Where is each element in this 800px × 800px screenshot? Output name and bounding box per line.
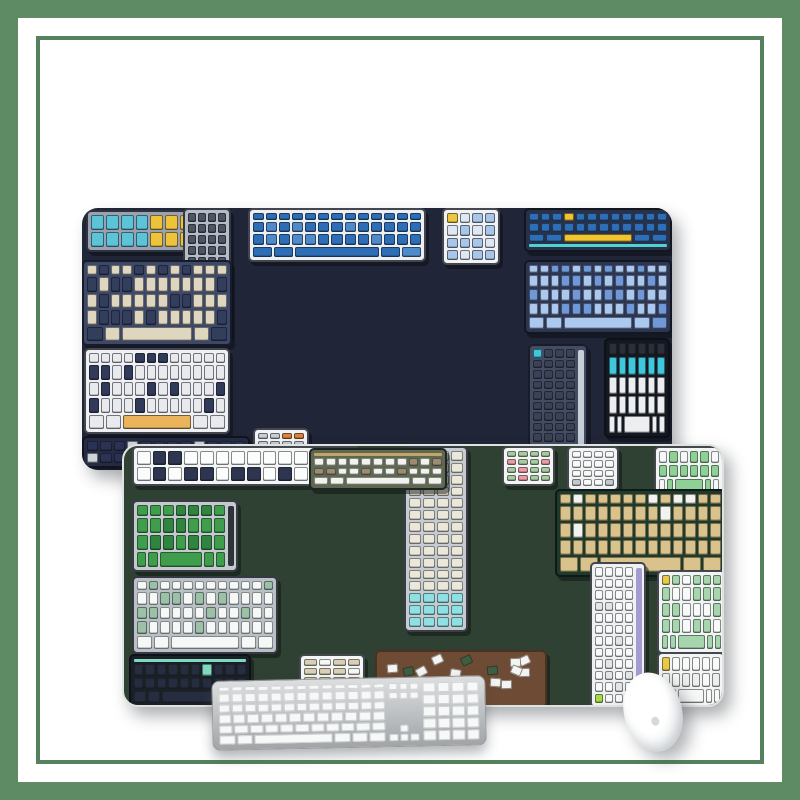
key <box>533 433 542 442</box>
key <box>264 592 274 605</box>
key <box>583 479 592 486</box>
key <box>172 607 182 620</box>
nav-key <box>388 683 397 690</box>
key <box>134 664 143 676</box>
key <box>605 451 614 458</box>
key <box>172 592 182 605</box>
key <box>208 213 216 222</box>
key <box>229 592 239 605</box>
key <box>241 592 251 605</box>
key <box>712 673 720 687</box>
key <box>264 581 274 590</box>
kb-white-orange <box>84 348 230 434</box>
key <box>134 277 144 291</box>
key <box>560 557 578 572</box>
key <box>106 232 119 247</box>
key <box>188 535 199 550</box>
key <box>232 704 243 713</box>
key <box>598 523 609 538</box>
key-row <box>507 475 550 481</box>
key <box>566 391 575 400</box>
key <box>555 433 564 442</box>
key <box>615 275 624 287</box>
key <box>647 275 656 287</box>
key <box>507 459 516 465</box>
key <box>180 664 189 676</box>
key <box>576 213 586 221</box>
key <box>158 310 168 324</box>
key-row <box>595 636 633 646</box>
key <box>309 692 320 701</box>
key <box>634 213 644 221</box>
key-row <box>560 523 721 538</box>
key <box>638 396 646 413</box>
key <box>485 238 496 248</box>
numpad-key <box>438 730 451 740</box>
key <box>181 398 191 412</box>
key <box>280 724 293 733</box>
key <box>529 265 538 273</box>
key <box>598 494 609 504</box>
key <box>637 275 646 287</box>
key <box>184 467 198 481</box>
key <box>250 725 263 734</box>
key-row <box>188 235 226 244</box>
key <box>219 704 230 713</box>
key <box>150 505 161 516</box>
key <box>214 535 225 550</box>
key-row <box>529 275 667 287</box>
key <box>101 365 111 379</box>
key-row <box>662 575 721 585</box>
key <box>533 370 542 379</box>
key <box>595 567 603 577</box>
key-row <box>409 510 463 520</box>
key <box>529 303 538 315</box>
key-row <box>609 416 665 433</box>
key <box>193 382 203 396</box>
key <box>529 213 539 221</box>
key <box>149 607 159 620</box>
key <box>615 694 623 704</box>
key-row <box>560 540 721 555</box>
key <box>423 558 435 568</box>
key <box>206 621 216 634</box>
key <box>188 246 196 255</box>
key <box>124 382 134 396</box>
modifier-key <box>219 736 235 745</box>
key-row <box>533 349 575 358</box>
key <box>150 535 161 550</box>
key <box>296 692 307 701</box>
key <box>672 575 680 585</box>
key <box>529 317 544 329</box>
key <box>660 494 671 504</box>
key <box>170 365 180 379</box>
key <box>397 458 407 466</box>
spacebar-key <box>624 416 649 433</box>
key <box>672 619 680 633</box>
key <box>292 222 303 232</box>
key-row <box>533 360 575 369</box>
key <box>625 648 633 658</box>
key-row <box>609 357 665 374</box>
key <box>609 357 617 374</box>
key <box>609 416 615 433</box>
spacebar-key <box>678 689 704 703</box>
key <box>181 365 191 379</box>
key <box>89 415 104 429</box>
loose-keycap <box>490 677 502 687</box>
key <box>685 523 696 538</box>
nav-key-block <box>388 683 419 742</box>
key <box>615 265 624 273</box>
key <box>615 303 624 315</box>
key <box>231 693 242 702</box>
key <box>219 715 231 724</box>
key <box>410 222 421 232</box>
key <box>533 349 542 358</box>
key <box>657 357 665 374</box>
key <box>145 678 154 690</box>
key <box>87 294 97 308</box>
key <box>566 381 575 390</box>
key <box>451 617 463 627</box>
key <box>358 234 369 244</box>
key <box>625 636 633 646</box>
key <box>623 523 634 538</box>
key <box>555 370 564 379</box>
key <box>615 671 623 681</box>
numpad-key <box>467 729 480 739</box>
key <box>605 579 613 589</box>
key-row <box>137 607 273 620</box>
key <box>652 234 667 242</box>
key <box>625 602 633 612</box>
key <box>341 723 354 732</box>
key <box>345 222 356 232</box>
key-row <box>595 613 633 623</box>
function-key <box>335 684 346 689</box>
key <box>673 523 684 538</box>
key <box>211 327 227 341</box>
key <box>635 540 646 555</box>
function-key <box>270 685 281 690</box>
key <box>303 713 315 722</box>
key <box>472 225 483 235</box>
key <box>472 238 483 248</box>
key <box>247 467 261 481</box>
key <box>348 701 359 710</box>
kb-numpad-sage <box>502 446 555 486</box>
key <box>194 327 210 341</box>
key-row <box>447 225 495 235</box>
key <box>204 365 214 379</box>
key <box>451 534 463 544</box>
key <box>540 303 549 315</box>
key-row <box>137 505 225 516</box>
key <box>283 692 294 701</box>
key <box>605 694 613 704</box>
key <box>193 265 203 275</box>
key <box>241 607 251 620</box>
key <box>648 540 659 555</box>
key <box>245 704 256 713</box>
key <box>587 213 597 221</box>
kb-white-blue <box>248 208 426 262</box>
key-row <box>89 365 225 379</box>
key <box>698 523 709 538</box>
key-row <box>533 381 575 390</box>
key <box>409 468 419 476</box>
key <box>625 625 633 635</box>
key <box>89 365 99 379</box>
key <box>184 451 198 465</box>
key <box>195 621 205 634</box>
key <box>87 327 103 341</box>
key <box>265 724 278 733</box>
key <box>198 246 206 255</box>
key <box>451 463 463 473</box>
key <box>237 664 246 676</box>
key <box>348 668 361 675</box>
key <box>437 522 449 532</box>
key <box>202 678 211 690</box>
key <box>137 518 148 533</box>
key <box>146 277 156 291</box>
key <box>314 477 328 485</box>
key <box>208 224 216 233</box>
key <box>561 275 570 287</box>
key <box>338 468 348 476</box>
kb-numpad-white <box>567 446 619 491</box>
key-row <box>87 327 227 341</box>
key <box>587 223 597 231</box>
key <box>658 303 667 315</box>
key <box>359 712 371 721</box>
key <box>135 365 145 379</box>
key <box>168 664 177 676</box>
key <box>447 250 458 260</box>
key <box>658 265 667 273</box>
key <box>638 377 646 394</box>
key <box>615 648 623 658</box>
key <box>619 377 627 394</box>
key-row <box>662 619 721 633</box>
key <box>662 657 670 671</box>
function-key <box>283 685 294 690</box>
key <box>572 275 581 287</box>
key-row <box>659 451 719 463</box>
key <box>165 232 178 247</box>
key <box>409 498 421 508</box>
key-row <box>409 570 463 580</box>
key <box>609 343 617 355</box>
key <box>615 682 623 692</box>
key <box>595 694 603 704</box>
key-row <box>253 247 421 257</box>
key <box>706 689 712 703</box>
key <box>657 213 667 221</box>
key <box>423 546 435 556</box>
numpad-key <box>451 682 464 692</box>
key <box>423 581 435 591</box>
kb-periwinkle <box>524 260 672 334</box>
key <box>634 317 649 329</box>
key <box>137 467 151 481</box>
key <box>647 289 656 301</box>
key <box>533 381 542 390</box>
key <box>373 458 383 466</box>
key <box>147 365 157 379</box>
key <box>294 451 308 465</box>
key <box>713 587 721 601</box>
key <box>270 433 280 439</box>
key <box>384 222 395 232</box>
key <box>134 691 146 703</box>
function-key <box>257 686 268 691</box>
key-row <box>572 479 614 486</box>
key <box>89 353 99 363</box>
numpad-key <box>423 718 436 728</box>
key <box>252 592 262 605</box>
key <box>201 518 212 533</box>
key <box>648 357 656 374</box>
key <box>124 365 134 379</box>
key <box>137 535 148 550</box>
key <box>122 310 132 324</box>
key <box>659 416 665 433</box>
key-row <box>253 222 421 232</box>
key <box>451 498 463 508</box>
key <box>707 635 713 649</box>
kb-navy-blue-yellow <box>524 208 672 252</box>
key <box>137 607 147 620</box>
key <box>451 570 463 580</box>
arrow-up-key <box>400 725 409 732</box>
key <box>333 668 346 675</box>
key <box>698 540 709 555</box>
key-row <box>572 470 614 477</box>
key <box>659 465 667 477</box>
key <box>318 234 329 244</box>
key-row <box>91 215 193 230</box>
key <box>338 458 348 466</box>
kb-black-cyan <box>604 338 670 438</box>
key <box>181 353 191 363</box>
key <box>204 552 213 567</box>
key <box>451 451 463 461</box>
key <box>305 234 316 244</box>
key <box>447 225 458 235</box>
key <box>605 590 613 600</box>
key <box>451 558 463 568</box>
nav-key-row <box>389 692 419 700</box>
key <box>437 593 449 603</box>
key <box>710 540 721 555</box>
key <box>572 265 581 273</box>
key <box>170 353 180 363</box>
loose-keycap <box>501 680 512 689</box>
key <box>623 494 634 504</box>
key <box>598 506 609 521</box>
key <box>605 613 613 623</box>
spacebar-key <box>564 234 633 242</box>
key <box>319 659 332 666</box>
key <box>146 310 156 324</box>
key <box>278 451 292 465</box>
key <box>657 343 665 355</box>
key-row <box>137 636 273 649</box>
key-row <box>409 498 463 508</box>
arrow-key <box>400 734 409 741</box>
numpad-key <box>466 705 479 715</box>
key-row <box>253 213 421 220</box>
spacebar-key <box>123 415 191 429</box>
function-key <box>361 684 372 689</box>
key <box>485 250 496 260</box>
apple-logo-icon <box>650 716 660 727</box>
key <box>122 265 132 275</box>
key <box>296 724 309 733</box>
key <box>595 602 603 612</box>
key <box>551 275 560 287</box>
key <box>205 265 215 275</box>
key <box>599 213 609 221</box>
key <box>206 607 216 620</box>
key <box>137 592 147 605</box>
key <box>660 506 671 521</box>
key-row <box>529 223 667 231</box>
key <box>397 468 407 476</box>
numpad-key <box>452 694 465 704</box>
key <box>198 213 206 222</box>
key <box>648 506 659 521</box>
key <box>266 234 277 244</box>
key <box>555 381 564 390</box>
numpad-row <box>423 729 479 740</box>
key <box>160 581 170 590</box>
kb-green-keys <box>132 500 238 572</box>
key <box>410 213 421 220</box>
key <box>622 213 632 221</box>
spacebar-key <box>160 552 202 567</box>
key <box>99 294 109 308</box>
numpad-key <box>438 718 451 728</box>
key <box>685 540 696 555</box>
key <box>270 703 281 712</box>
key <box>384 234 395 244</box>
key <box>136 232 149 247</box>
key <box>712 657 720 671</box>
key <box>615 636 623 646</box>
key <box>219 693 230 702</box>
key <box>552 223 562 231</box>
key <box>615 590 623 600</box>
key <box>229 607 239 620</box>
key <box>598 540 609 555</box>
key <box>551 289 560 301</box>
spacebar-key <box>564 317 633 329</box>
key <box>89 398 99 412</box>
key <box>101 353 111 363</box>
key <box>111 277 121 291</box>
key <box>615 602 623 612</box>
key <box>460 238 471 248</box>
key <box>231 451 245 465</box>
key <box>198 224 206 233</box>
key <box>137 451 151 465</box>
